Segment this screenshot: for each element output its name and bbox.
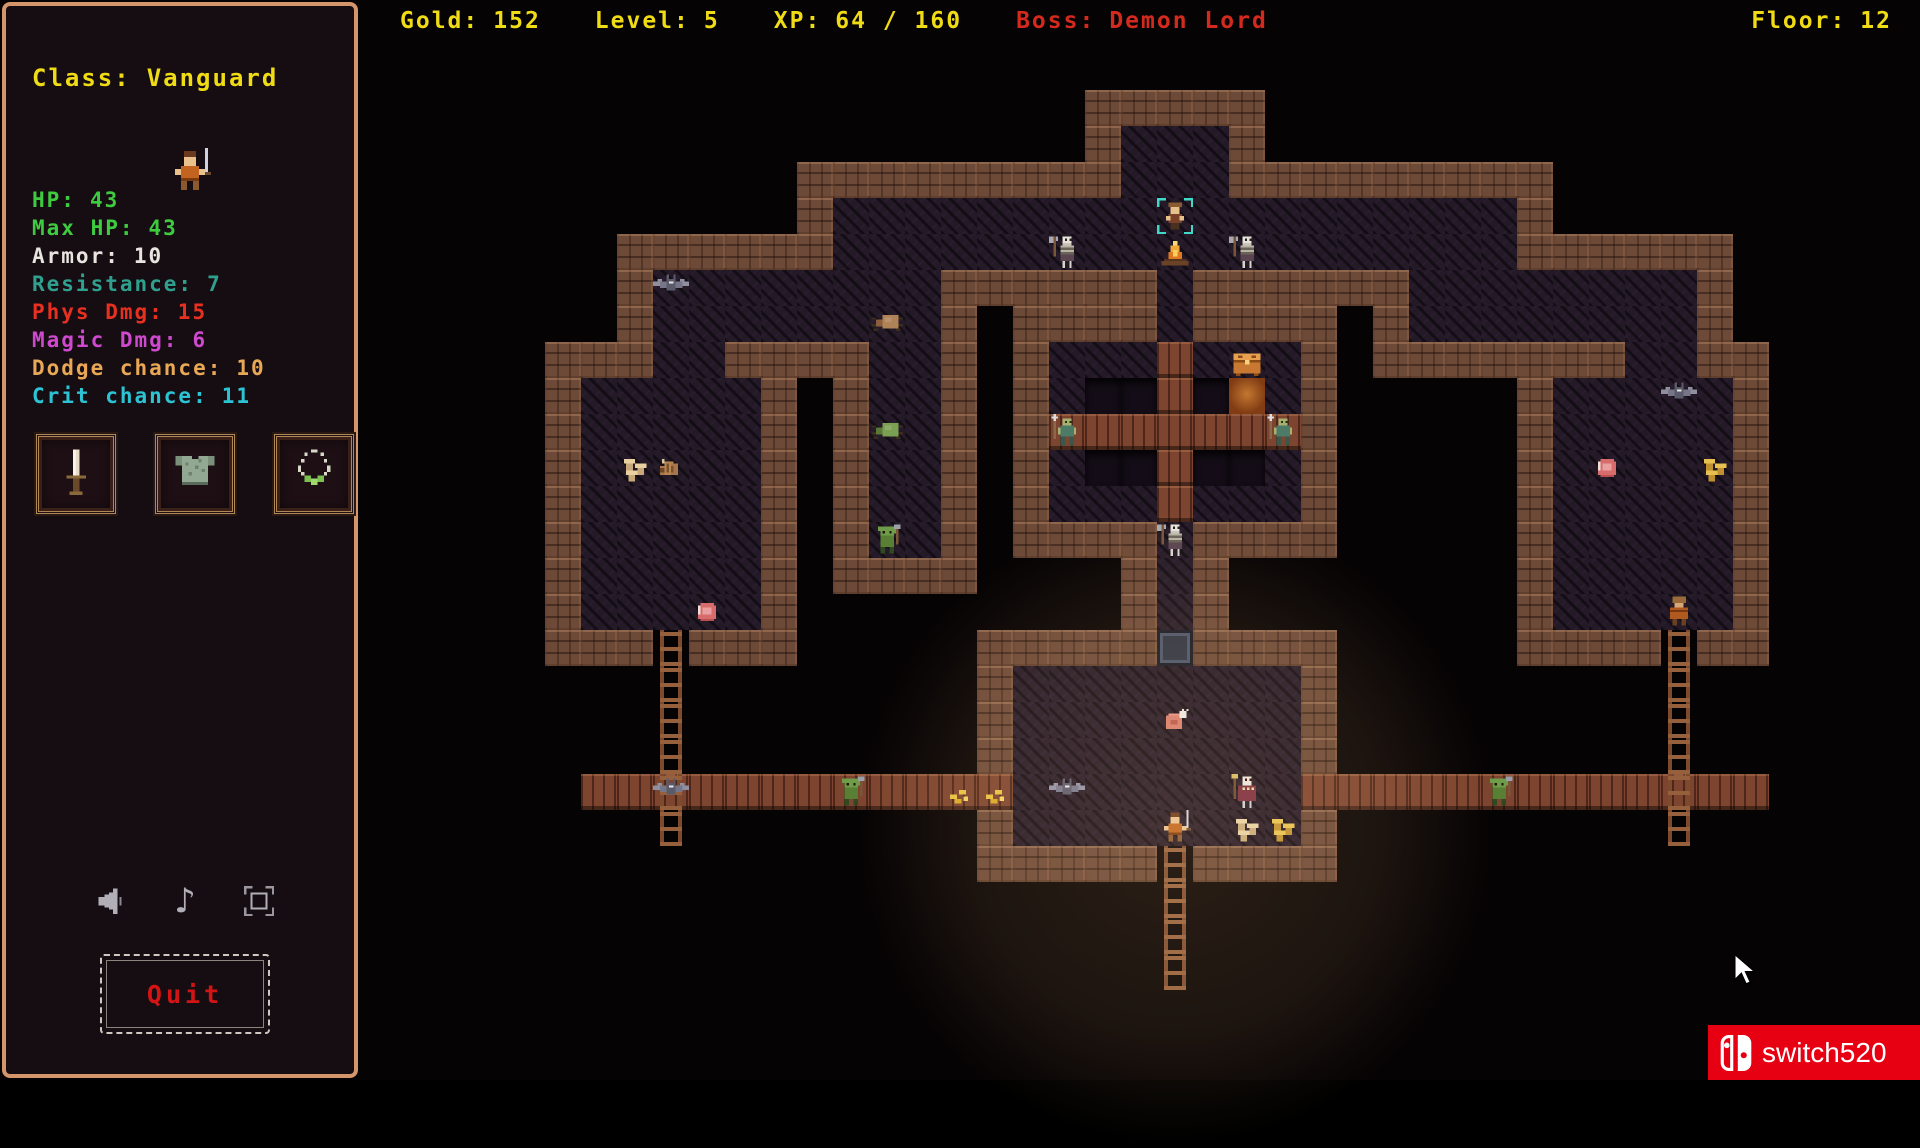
ladder[interactable] xyxy=(1157,882,1193,918)
floor-tile[interactable] xyxy=(1193,666,1229,702)
floor-tile[interactable] xyxy=(581,486,617,522)
wall-tile xyxy=(1733,414,1769,450)
floor-tile[interactable] xyxy=(1193,162,1229,198)
floor-tile[interactable] xyxy=(1085,702,1121,738)
player-sprite[interactable] xyxy=(1157,810,1193,846)
floor-tile[interactable] xyxy=(653,486,689,522)
floor-tile[interactable] xyxy=(1013,702,1049,738)
floor-tile[interactable] xyxy=(725,486,761,522)
floor-tile[interactable] xyxy=(1193,810,1229,846)
floor-tile[interactable] xyxy=(725,414,761,450)
chest-sprite[interactable] xyxy=(1229,342,1265,378)
bridge-tile[interactable] xyxy=(1229,414,1265,450)
mouse-cursor xyxy=(1732,952,1758,988)
campfire-sprite[interactable] xyxy=(1157,234,1193,270)
floor-tile[interactable] xyxy=(1589,414,1625,450)
floor-tile[interactable] xyxy=(1661,522,1697,558)
floor-tile[interactable] xyxy=(1121,198,1157,234)
ladder[interactable] xyxy=(1661,738,1697,774)
volume-icon[interactable] xyxy=(94,884,128,918)
floor-tile[interactable] xyxy=(833,234,869,270)
zombie-sprite[interactable] xyxy=(1049,414,1085,450)
floor-tile[interactable] xyxy=(1121,126,1157,162)
floor-tile[interactable] xyxy=(1265,450,1301,486)
floor-tile[interactable] xyxy=(1193,198,1229,234)
floor-tile[interactable] xyxy=(1049,486,1085,522)
bridge-tile[interactable] xyxy=(617,774,653,810)
class-label: Class: xyxy=(32,64,131,92)
ladder[interactable] xyxy=(1157,846,1193,882)
wall-tile xyxy=(1193,558,1229,594)
bridge-tile[interactable] xyxy=(1301,774,1337,810)
hatch-door[interactable] xyxy=(1157,630,1193,666)
dwarf-npc-sprite[interactable] xyxy=(1157,198,1193,234)
floor-tile[interactable] xyxy=(581,378,617,414)
floor-tile[interactable] xyxy=(581,594,617,630)
ladder[interactable] xyxy=(653,738,689,774)
floor-tile[interactable] xyxy=(1157,162,1193,198)
floor-tile[interactable] xyxy=(1697,522,1733,558)
floor-tile[interactable] xyxy=(1013,234,1049,270)
floor-tile[interactable] xyxy=(1301,234,1337,270)
floor-tile[interactable] xyxy=(617,594,653,630)
bridge-tile[interactable] xyxy=(1157,342,1193,378)
floor-tile[interactable] xyxy=(1517,270,1553,306)
bat-sprite[interactable] xyxy=(1049,774,1085,810)
wall-tile xyxy=(545,630,581,666)
floor-tile[interactable] xyxy=(869,234,905,270)
floor-tile[interactable] xyxy=(1589,306,1625,342)
floor-tile[interactable] xyxy=(1553,306,1589,342)
wall-tile xyxy=(761,450,797,486)
ladder[interactable] xyxy=(1157,918,1193,954)
floor-tile[interactable] xyxy=(1229,666,1265,702)
ladder[interactable] xyxy=(1661,810,1697,846)
floor-tile[interactable] xyxy=(1661,558,1697,594)
bridge-tile[interactable] xyxy=(725,774,761,810)
wall-tile xyxy=(545,594,581,630)
floor-tile[interactable] xyxy=(1085,198,1121,234)
floor-tile[interactable] xyxy=(1193,738,1229,774)
floor-tile[interactable] xyxy=(1661,342,1697,378)
amulet-slot[interactable] xyxy=(274,434,354,514)
floor-tile[interactable] xyxy=(1049,450,1085,486)
bridge-tile[interactable] xyxy=(761,774,797,810)
floor-tile[interactable] xyxy=(725,378,761,414)
floor-tile[interactable] xyxy=(689,306,725,342)
floor-tile[interactable] xyxy=(1589,378,1625,414)
floor-tile[interactable] xyxy=(941,234,977,270)
floor-tile[interactable] xyxy=(1121,666,1157,702)
floor-tile[interactable] xyxy=(1625,270,1661,306)
floor-tile[interactable] xyxy=(905,234,941,270)
floor-tile[interactable] xyxy=(1085,774,1121,810)
bridge-tile[interactable] xyxy=(1553,774,1589,810)
floor-tile[interactable] xyxy=(977,234,1013,270)
floor-tile[interactable] xyxy=(1373,198,1409,234)
floor-tile[interactable] xyxy=(1445,270,1481,306)
floor-tile[interactable] xyxy=(761,306,797,342)
floor-tile[interactable] xyxy=(1049,738,1085,774)
floor-tile[interactable] xyxy=(1661,306,1697,342)
floor-tile[interactable] xyxy=(1121,774,1157,810)
floor-tile[interactable] xyxy=(797,270,833,306)
ladder[interactable] xyxy=(653,666,689,702)
floor-tile[interactable] xyxy=(1661,486,1697,522)
floor-tile[interactable] xyxy=(869,450,905,486)
floor-tile[interactable] xyxy=(653,342,689,378)
floor-tile[interactable] xyxy=(1229,702,1265,738)
floor-tile[interactable] xyxy=(869,342,905,378)
floor-tile[interactable] xyxy=(1697,378,1733,414)
floor-tile[interactable] xyxy=(1409,270,1445,306)
floor-tile[interactable] xyxy=(1265,774,1301,810)
floor-tile[interactable] xyxy=(1085,486,1121,522)
skeleton-axe-sprite[interactable] xyxy=(1049,234,1085,270)
floor-tile[interactable] xyxy=(1301,198,1337,234)
bridge-tile[interactable] xyxy=(797,774,833,810)
floor-tile[interactable] xyxy=(1229,198,1265,234)
floor-tile[interactable] xyxy=(869,378,905,414)
floor-tile[interactable] xyxy=(1193,234,1229,270)
floor-tile[interactable] xyxy=(1373,234,1409,270)
floor-tile[interactable] xyxy=(1553,414,1589,450)
ladder[interactable] xyxy=(1661,774,1697,810)
ladder[interactable] xyxy=(653,630,689,666)
floor-tile[interactable] xyxy=(905,198,941,234)
floor-tile[interactable] xyxy=(1121,810,1157,846)
floor-tile[interactable] xyxy=(761,270,797,306)
quit-button[interactable]: Quit xyxy=(100,954,270,1034)
floor-tile[interactable] xyxy=(581,450,617,486)
floor-tile[interactable] xyxy=(833,270,869,306)
floor-tile[interactable] xyxy=(1085,234,1121,270)
floor-tile[interactable] xyxy=(1013,774,1049,810)
floor-tile[interactable] xyxy=(905,522,941,558)
floor-tile[interactable] xyxy=(1157,594,1193,630)
floor-tile[interactable] xyxy=(1625,306,1661,342)
floor-tile[interactable] xyxy=(1013,666,1049,702)
floor-tile[interactable] xyxy=(689,558,725,594)
wall-tile xyxy=(1373,342,1409,378)
floor-tile[interactable] xyxy=(1265,198,1301,234)
floor-tile[interactable] xyxy=(725,450,761,486)
floor-tile[interactable] xyxy=(689,270,725,306)
meat-sprite[interactable] xyxy=(1589,450,1625,486)
bridge-tile[interactable] xyxy=(1157,414,1193,450)
floor-tile[interactable] xyxy=(1265,702,1301,738)
floor-tile[interactable] xyxy=(725,270,761,306)
mushrooms-gold-sprite[interactable] xyxy=(1697,450,1733,486)
floor-tile[interactable] xyxy=(1553,270,1589,306)
floor-tile[interactable] xyxy=(1553,522,1589,558)
floor-tile[interactable] xyxy=(1157,738,1193,774)
floor-tile[interactable] xyxy=(1013,738,1049,774)
skeleton-priest-sprite[interactable] xyxy=(1229,774,1265,810)
goblin-sprite[interactable] xyxy=(1481,774,1517,810)
floor-tile[interactable] xyxy=(1049,666,1085,702)
bat-sprite[interactable] xyxy=(653,270,689,306)
floor-tile[interactable] xyxy=(1013,198,1049,234)
floor-tile[interactable] xyxy=(1697,486,1733,522)
coins-sprite[interactable] xyxy=(941,774,977,810)
floor-tile[interactable] xyxy=(1589,594,1625,630)
bridge-tile[interactable] xyxy=(1373,774,1409,810)
floor-tile[interactable] xyxy=(905,414,941,450)
floor-tile[interactable] xyxy=(1157,666,1193,702)
floor-tile[interactable] xyxy=(1589,558,1625,594)
mushrooms-white-sprite[interactable] xyxy=(1229,810,1265,846)
floor-tile[interactable] xyxy=(1085,666,1121,702)
bridge-tile[interactable] xyxy=(1157,378,1193,414)
floor-tile[interactable] xyxy=(1121,234,1157,270)
floor-tile[interactable] xyxy=(1121,342,1157,378)
bridge-tile[interactable] xyxy=(581,774,617,810)
goblin-sprite[interactable] xyxy=(869,522,905,558)
floor-tile[interactable] xyxy=(1697,594,1733,630)
floor-tile[interactable] xyxy=(689,486,725,522)
bat-sprite[interactable] xyxy=(653,774,689,810)
warrior-armored-sprite[interactable] xyxy=(1661,594,1697,630)
floor-tile[interactable] xyxy=(1553,378,1589,414)
ladder[interactable] xyxy=(1157,954,1193,990)
floor-tile[interactable] xyxy=(581,414,617,450)
floor-tile[interactable] xyxy=(617,378,653,414)
bridge-tile[interactable] xyxy=(1193,414,1229,450)
floor-tile[interactable] xyxy=(1625,594,1661,630)
skeleton-axe-sprite[interactable] xyxy=(1157,522,1193,558)
floor-tile[interactable] xyxy=(1157,126,1193,162)
floor-tile[interactable] xyxy=(1229,486,1265,522)
floor-tile[interactable] xyxy=(1625,522,1661,558)
floor-tile[interactable] xyxy=(833,306,869,342)
wall-tile xyxy=(977,270,1013,306)
floor-tile[interactable] xyxy=(1445,198,1481,234)
bridge-tile[interactable] xyxy=(1445,774,1481,810)
meat-sprite[interactable] xyxy=(689,594,725,630)
bridge-tile[interactable] xyxy=(1157,486,1193,522)
floor-tile[interactable] xyxy=(725,558,761,594)
floor-tile[interactable] xyxy=(689,378,725,414)
floor-tile[interactable] xyxy=(725,522,761,558)
floor-tile[interactable] xyxy=(1193,342,1229,378)
floor-tile[interactable] xyxy=(1229,738,1265,774)
floor-tile[interactable] xyxy=(1085,342,1121,378)
floor-tile[interactable] xyxy=(1049,810,1085,846)
armor-slot[interactable] xyxy=(155,434,235,514)
floor-tile[interactable] xyxy=(725,594,761,630)
wall-tile xyxy=(1553,342,1589,378)
ladder[interactable] xyxy=(1661,630,1697,666)
mushrooms-gold-sprite[interactable] xyxy=(1265,810,1301,846)
floor-tile[interactable] xyxy=(689,522,725,558)
dungeon-map[interactable] xyxy=(545,90,1805,1026)
bridge-tile[interactable] xyxy=(1085,414,1121,450)
bridge-tile[interactable] xyxy=(689,774,725,810)
floor-tile[interactable] xyxy=(1265,486,1301,522)
stat-row-dodge-chance: Dodge chance:10 xyxy=(32,356,266,384)
floor-tile[interactable] xyxy=(725,306,761,342)
floor-tile[interactable] xyxy=(905,486,941,522)
bridge-tile[interactable] xyxy=(1697,774,1733,810)
skeleton-axe-sprite[interactable] xyxy=(1229,234,1265,270)
ladder[interactable] xyxy=(1661,702,1697,738)
floor-tile[interactable] xyxy=(1553,594,1589,630)
floor-tile[interactable] xyxy=(1481,306,1517,342)
floor-tile[interactable] xyxy=(1265,234,1301,270)
floor-tile[interactable] xyxy=(1589,522,1625,558)
floor-tile[interactable] xyxy=(689,450,725,486)
floor-tile[interactable] xyxy=(1625,414,1661,450)
floor-tile[interactable] xyxy=(1265,378,1301,414)
bridge-tile[interactable] xyxy=(869,774,905,810)
floor-tile[interactable] xyxy=(1157,774,1193,810)
mushrooms-white-sprite[interactable] xyxy=(617,450,653,486)
floor-tile[interactable] xyxy=(1661,414,1697,450)
wall-tile xyxy=(833,162,869,198)
bridge-tile[interactable] xyxy=(1409,774,1445,810)
bridge-tile[interactable] xyxy=(1517,774,1553,810)
ladder[interactable] xyxy=(653,702,689,738)
floor-tile[interactable] xyxy=(1445,306,1481,342)
floor-tile[interactable] xyxy=(1409,234,1445,270)
bridge-tile[interactable] xyxy=(1733,774,1769,810)
floor-tile[interactable] xyxy=(581,558,617,594)
ladder[interactable] xyxy=(653,810,689,846)
bridge-tile[interactable] xyxy=(905,774,941,810)
wall-tile xyxy=(941,486,977,522)
floor-tile[interactable] xyxy=(1625,558,1661,594)
ladder[interactable] xyxy=(1661,666,1697,702)
floor-tile[interactable] xyxy=(833,198,869,234)
floor-tile[interactable] xyxy=(1265,342,1301,378)
floor-tile[interactable] xyxy=(1157,306,1193,342)
bridge-tile[interactable] xyxy=(1121,414,1157,450)
floor-tile[interactable] xyxy=(617,414,653,450)
floor-tile[interactable] xyxy=(1193,126,1229,162)
wall-tile xyxy=(1733,630,1769,666)
floor-tile[interactable] xyxy=(1625,342,1661,378)
floor-tile[interactable] xyxy=(1085,738,1121,774)
floor-tile[interactable] xyxy=(1049,342,1085,378)
floor-tile[interactable] xyxy=(1661,270,1697,306)
stat-value: 6 xyxy=(192,328,207,356)
spider-brown-sprite[interactable] xyxy=(869,306,905,342)
grub-sprite[interactable] xyxy=(653,450,689,486)
floor-tile[interactable] xyxy=(869,270,905,306)
floor-tile[interactable] xyxy=(941,198,977,234)
floor-tile[interactable] xyxy=(905,306,941,342)
floor-tile[interactable] xyxy=(653,378,689,414)
floor-tile[interactable] xyxy=(1625,450,1661,486)
floor-tile[interactable] xyxy=(1121,738,1157,774)
floor-tile[interactable] xyxy=(617,558,653,594)
floor-tile[interactable] xyxy=(689,342,725,378)
music-icon[interactable]: ♪ xyxy=(168,884,202,918)
bridge-tile[interactable] xyxy=(1589,774,1625,810)
floor-tile[interactable] xyxy=(1085,810,1121,846)
floor-tile[interactable] xyxy=(689,414,725,450)
floor-tile[interactable] xyxy=(1481,270,1517,306)
wall-tile xyxy=(1589,234,1625,270)
floor-tile[interactable] xyxy=(1661,450,1697,486)
floor-tile[interactable] xyxy=(1625,486,1661,522)
floor-tile[interactable] xyxy=(1697,414,1733,450)
floor-tile[interactable] xyxy=(1589,270,1625,306)
floor-tile[interactable] xyxy=(1553,450,1589,486)
bat-sprite[interactable] xyxy=(1661,378,1697,414)
floor-tile[interactable] xyxy=(1481,234,1517,270)
floor-tile[interactable] xyxy=(905,450,941,486)
floor-tile[interactable] xyxy=(617,486,653,522)
floor-tile[interactable] xyxy=(1481,198,1517,234)
floor-tile[interactable] xyxy=(1157,270,1193,306)
spider-green-sprite[interactable] xyxy=(869,414,905,450)
ham-sprite[interactable] xyxy=(1157,702,1193,738)
floor-tile[interactable] xyxy=(1409,198,1445,234)
floor-tile[interactable] xyxy=(1445,234,1481,270)
floor-tile[interactable] xyxy=(1409,306,1445,342)
floor-tile[interactable] xyxy=(869,486,905,522)
floor-tile[interactable] xyxy=(797,306,833,342)
floor-tile[interactable] xyxy=(1013,810,1049,846)
floor-tile[interactable] xyxy=(653,414,689,450)
bridge-tile[interactable] xyxy=(1625,774,1661,810)
floor-tile[interactable] xyxy=(653,522,689,558)
floor-tile[interactable] xyxy=(1193,486,1229,522)
floor-tile[interactable] xyxy=(617,522,653,558)
floor-tile[interactable] xyxy=(905,270,941,306)
floor-tile[interactable] xyxy=(1049,198,1085,234)
bridge-tile[interactable] xyxy=(1157,450,1193,486)
floor-tile[interactable] xyxy=(1193,702,1229,738)
floor-tile[interactable] xyxy=(1553,558,1589,594)
floor-tile[interactable] xyxy=(1265,738,1301,774)
floor-tile[interactable] xyxy=(1049,702,1085,738)
floor-tile[interactable] xyxy=(1697,558,1733,594)
weapon-slot[interactable] xyxy=(36,434,116,514)
floor-tile[interactable] xyxy=(1337,198,1373,234)
floor-tile[interactable] xyxy=(1121,162,1157,198)
floor-tile[interactable] xyxy=(1517,306,1553,342)
floor-tile[interactable] xyxy=(1337,234,1373,270)
floor-tile[interactable] xyxy=(653,558,689,594)
floor-tile[interactable] xyxy=(905,342,941,378)
floor-tile[interactable] xyxy=(869,198,905,234)
fullscreen-icon[interactable] xyxy=(242,884,276,918)
floor-tile[interactable] xyxy=(1121,702,1157,738)
bridge-tile[interactable] xyxy=(1337,774,1373,810)
floor-tile[interactable] xyxy=(1625,378,1661,414)
floor-tile[interactable] xyxy=(653,594,689,630)
floor-tile[interactable] xyxy=(1157,558,1193,594)
zombie-sprite[interactable] xyxy=(1265,414,1301,450)
floor-tile[interactable] xyxy=(1121,486,1157,522)
floor-tile[interactable] xyxy=(1265,666,1301,702)
wall-tile xyxy=(833,414,869,450)
floor-tile[interactable] xyxy=(581,522,617,558)
coins-sprite[interactable] xyxy=(977,774,1013,810)
floor-tile[interactable] xyxy=(977,198,1013,234)
wall-tile xyxy=(1733,486,1769,522)
floor-tile[interactable] xyxy=(1553,486,1589,522)
floor-tile[interactable] xyxy=(905,378,941,414)
floor-tile[interactable] xyxy=(653,306,689,342)
floor-tile[interactable] xyxy=(1193,774,1229,810)
goblin-sprite[interactable] xyxy=(833,774,869,810)
floor-tile[interactable] xyxy=(1049,378,1085,414)
floor-tile[interactable] xyxy=(1589,486,1625,522)
